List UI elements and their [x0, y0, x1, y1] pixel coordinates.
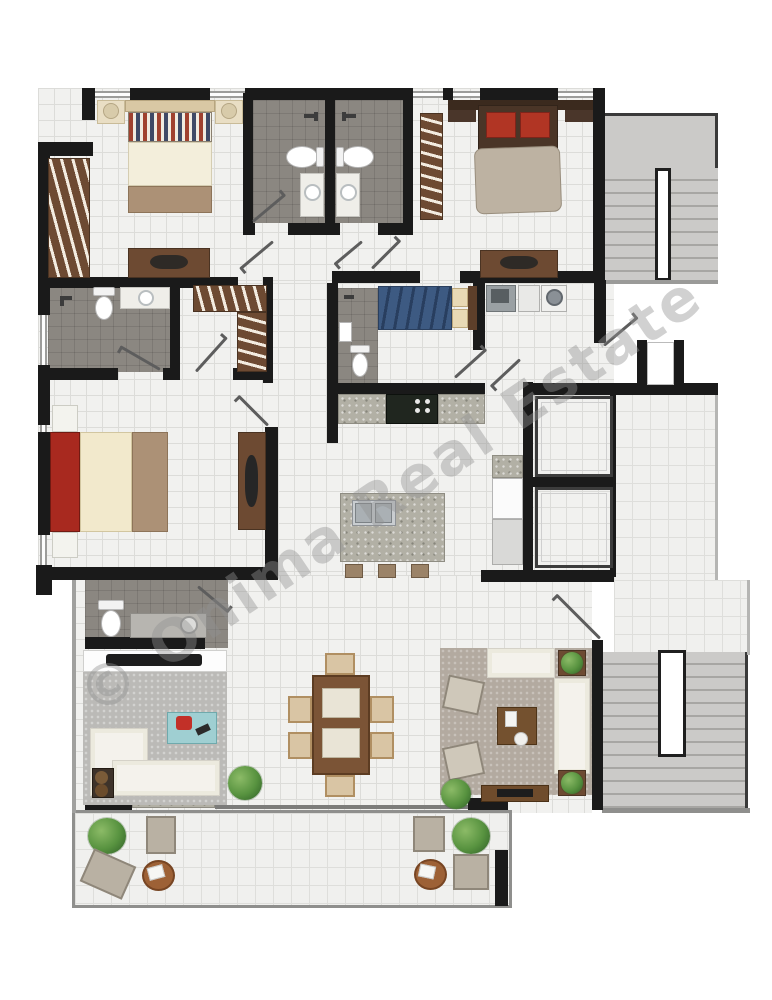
bed-red-headboard: [50, 432, 80, 532]
dishwasher: [518, 285, 540, 312]
plant: [441, 779, 471, 809]
lobby-lower-floor: [614, 580, 750, 652]
dining-chair: [325, 653, 355, 675]
plant: [452, 818, 490, 854]
wall: [288, 223, 340, 235]
plant: [228, 766, 262, 800]
bed1-blanket: [128, 186, 212, 213]
window: [95, 91, 130, 98]
plant: [561, 772, 583, 794]
toilet: [286, 146, 318, 168]
bar-stool: [378, 564, 396, 578]
wardrobe: [420, 113, 443, 220]
terrace-chair: [453, 854, 489, 890]
floor-plan: © Onima Real Estate: [0, 0, 772, 1000]
wall: [38, 432, 50, 535]
wall: [495, 850, 508, 906]
window: [40, 315, 47, 365]
pillow: [52, 405, 78, 432]
toilet: [342, 146, 374, 168]
bowl: [514, 732, 528, 746]
maid-bed-headboard: [468, 286, 477, 330]
small-sink: [339, 322, 352, 342]
plant: [561, 652, 583, 674]
tv: [497, 789, 533, 797]
terrace-chair: [146, 816, 176, 854]
place-setting: [322, 688, 360, 718]
master-side-shelf: [565, 110, 593, 122]
toilet-tank: [336, 147, 344, 167]
place-setting: [322, 728, 360, 758]
window: [40, 535, 47, 565]
wall: [592, 640, 603, 810]
closet-wardrobe: [237, 312, 267, 372]
elevator-lobby-floor: [614, 393, 717, 580]
wall: [170, 287, 180, 380]
elevator-car: [535, 487, 613, 568]
dining-chair: [325, 775, 355, 797]
maid-pillow: [452, 288, 468, 307]
decor-bowl: [95, 784, 108, 797]
lamp: [221, 103, 237, 119]
wall: [403, 93, 413, 235]
burner: [415, 408, 420, 413]
shower-icon: [314, 112, 318, 121]
sink-bowl: [304, 184, 321, 201]
burner: [425, 399, 430, 404]
wall: [378, 223, 413, 235]
bed1-pillows: [128, 112, 212, 142]
wall: [243, 93, 253, 235]
shower-icon: [342, 112, 346, 121]
washer-door: [546, 289, 563, 306]
stairwell-bottom-railing: [658, 650, 686, 757]
lobby-right-edge: [715, 393, 718, 580]
window: [558, 91, 593, 98]
decor-red: [176, 716, 192, 730]
window: [413, 91, 443, 98]
master-pillow: [486, 112, 516, 138]
toilet: [95, 296, 113, 320]
burner: [415, 399, 420, 404]
toilet: [352, 353, 368, 377]
toilet-tank: [98, 600, 124, 610]
window: [453, 91, 480, 98]
fridge: [492, 478, 523, 519]
bed1-headboard: [125, 100, 215, 112]
wall: [443, 88, 453, 100]
decor-bowl: [95, 771, 108, 784]
stairwell-bottom-edge: [602, 808, 750, 813]
master-duvet: [474, 146, 562, 215]
dining-chair: [370, 732, 394, 759]
dining-chair: [288, 696, 312, 723]
sofa: [554, 678, 590, 774]
laundry-sink-bowl: [491, 289, 509, 303]
lobby-right-edge-2: [747, 580, 750, 655]
dining-chair: [288, 732, 312, 759]
closet-wardrobe: [193, 285, 267, 312]
sink-bowl: [340, 184, 357, 201]
wall: [82, 88, 95, 120]
lamp: [103, 103, 119, 119]
toilet-tank: [93, 287, 115, 296]
armchair: [442, 675, 485, 716]
master-pillow: [520, 112, 550, 138]
wall: [245, 223, 255, 235]
terrace: [72, 810, 512, 908]
tv: [245, 455, 258, 507]
wall: [593, 88, 605, 283]
wall: [327, 283, 338, 443]
shower-icon: [344, 295, 354, 299]
balcony-railing: [215, 805, 468, 809]
dining-chair: [370, 696, 394, 723]
toilet-tank: [316, 147, 324, 167]
maid-bed-duvet: [378, 286, 452, 330]
wall: [38, 368, 118, 380]
appliance: [492, 519, 523, 565]
wall: [533, 477, 613, 487]
terrace-chair: [413, 816, 445, 852]
pillow: [52, 532, 78, 558]
toilet-tank: [350, 345, 370, 353]
burner: [425, 408, 430, 413]
bed1-duvet: [128, 142, 212, 186]
shower-icon: [60, 296, 64, 306]
wall: [163, 368, 180, 380]
sofa: [112, 760, 220, 796]
wall: [480, 88, 558, 100]
dresser-tray: [150, 255, 188, 269]
wall: [325, 93, 335, 223]
sink-bowl: [138, 290, 154, 306]
sofa: [487, 648, 555, 678]
wall: [130, 88, 210, 100]
bed-blanket: [132, 432, 168, 532]
dresser-tray: [500, 256, 538, 269]
maid-pillow: [452, 309, 468, 328]
master-side-shelf: [448, 110, 476, 122]
bar-stool: [411, 564, 429, 578]
kitchen-counter: [338, 394, 386, 424]
wardrobe: [48, 158, 90, 278]
wall: [332, 271, 420, 283]
window: [210, 91, 245, 98]
bed-duvet: [80, 432, 132, 532]
wall: [481, 570, 614, 582]
magazine: [505, 711, 517, 727]
